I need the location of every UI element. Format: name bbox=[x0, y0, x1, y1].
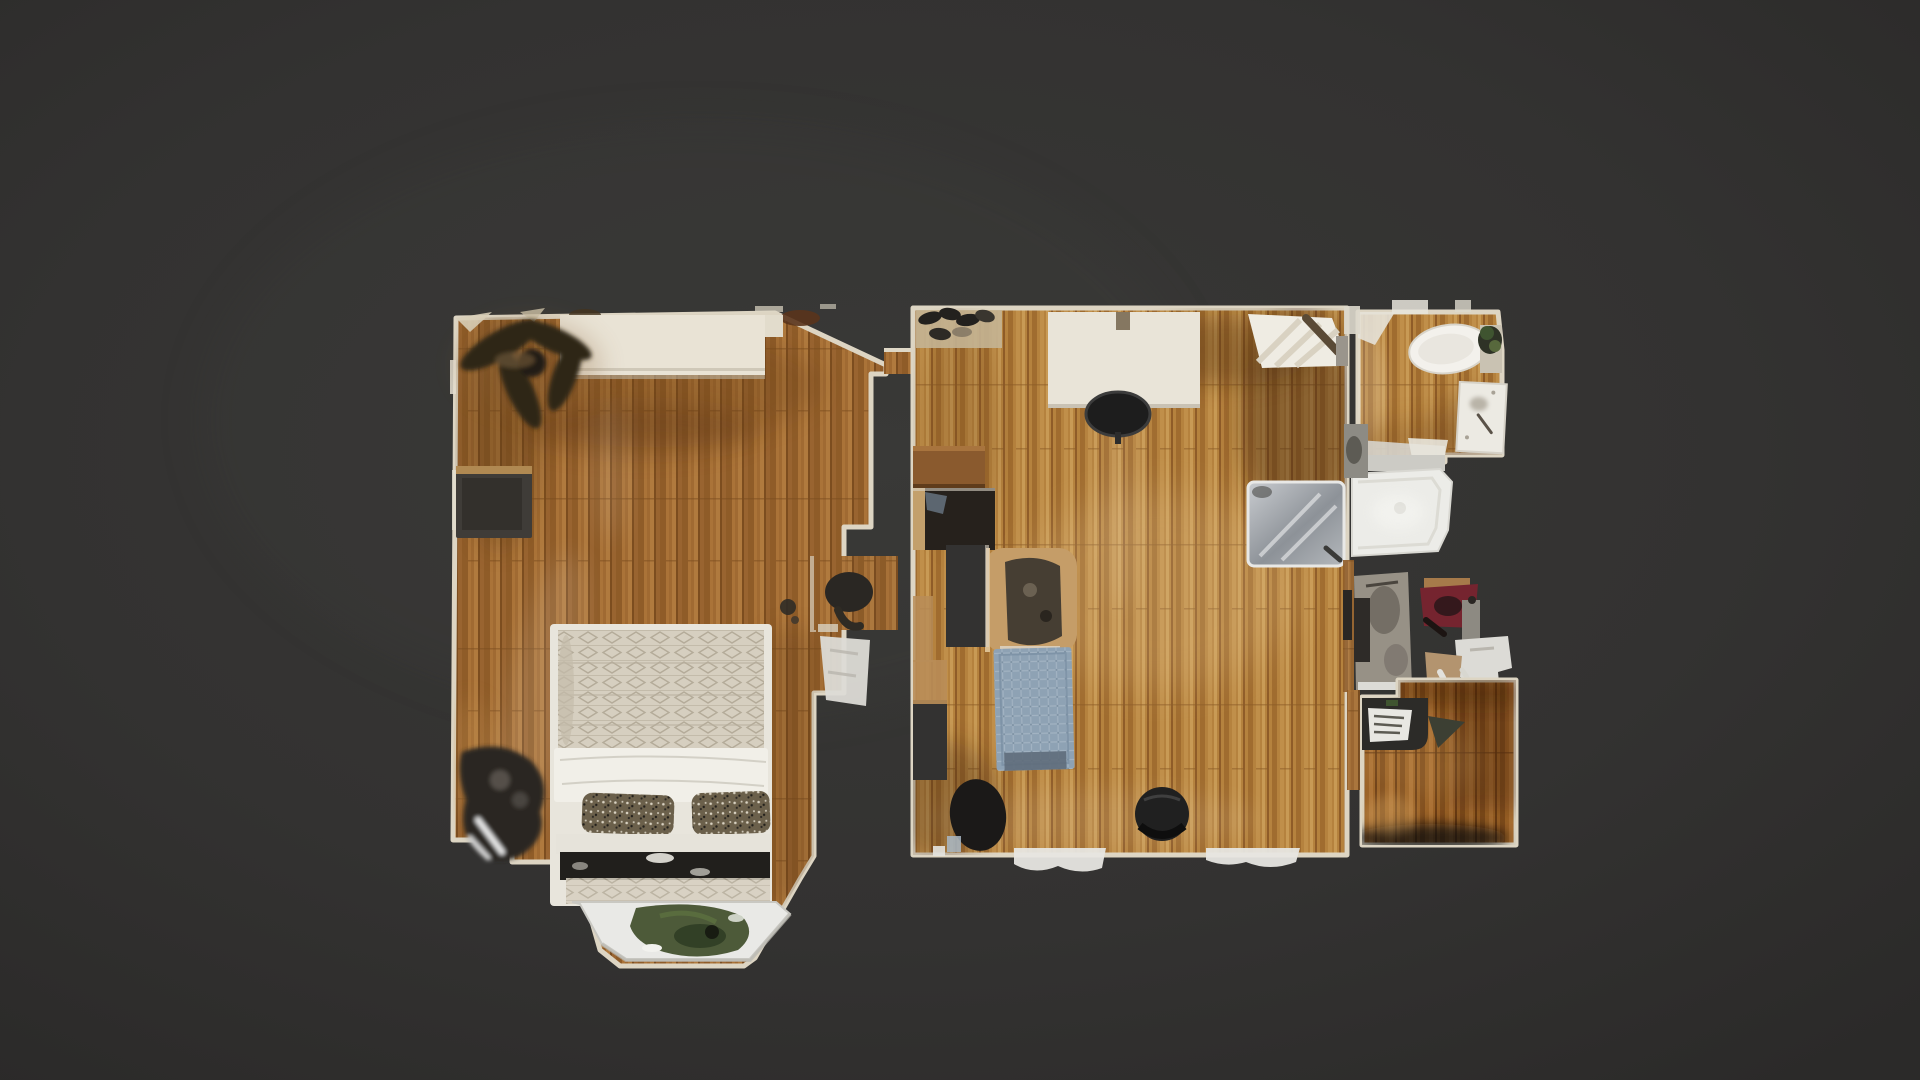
shoe-mat bbox=[916, 306, 1002, 348]
shoe bbox=[952, 327, 972, 337]
scan-tear bbox=[450, 360, 456, 394]
room-office-nook bbox=[1352, 678, 1520, 852]
floor-object bbox=[947, 836, 961, 852]
scan-hole bbox=[946, 545, 986, 647]
scan-hole-edge bbox=[985, 545, 989, 647]
bed bbox=[550, 624, 772, 906]
clothes-rack bbox=[1248, 314, 1348, 368]
door-leaf bbox=[1347, 690, 1360, 790]
floor-object bbox=[933, 846, 945, 856]
scan-tear bbox=[755, 306, 783, 312]
clothes-pile bbox=[460, 747, 544, 861]
floor-object bbox=[791, 616, 799, 624]
scan-tear bbox=[820, 304, 836, 309]
bed-foot-band bbox=[566, 878, 770, 904]
office-chair bbox=[1086, 392, 1150, 436]
pillow bbox=[581, 792, 674, 835]
tank-plant bbox=[1480, 326, 1494, 340]
glass-panel bbox=[1248, 482, 1344, 566]
tv-cabinet bbox=[913, 488, 995, 550]
armchair bbox=[985, 548, 1077, 652]
pillow bbox=[691, 791, 770, 836]
pillow-black-row bbox=[560, 852, 770, 880]
scan-fragment bbox=[818, 624, 838, 632]
scan-tear bbox=[1392, 300, 1428, 314]
wood-sliver bbox=[1343, 590, 1352, 640]
scan-tear bbox=[780, 310, 820, 326]
scan-fragment bbox=[820, 636, 870, 706]
side-table bbox=[913, 446, 985, 488]
couch-fragment bbox=[913, 660, 947, 704]
room-living bbox=[880, 305, 1360, 872]
wall-fragment bbox=[1344, 424, 1368, 478]
armchair-seat bbox=[1005, 558, 1062, 645]
floor-object bbox=[825, 572, 873, 612]
scan-hole bbox=[913, 700, 947, 780]
scan-tear bbox=[1455, 300, 1471, 312]
floor-object bbox=[780, 599, 796, 615]
viewer-stage bbox=[0, 0, 1920, 1080]
rug bbox=[993, 647, 1074, 771]
tank-plant bbox=[1489, 340, 1501, 352]
vanity-sink bbox=[1456, 382, 1507, 453]
wall-unit bbox=[452, 466, 532, 538]
wardrobe-panel bbox=[1354, 572, 1412, 690]
scan-fragment bbox=[1462, 600, 1480, 640]
floorplan-canvas[interactable] bbox=[0, 0, 1920, 1080]
couch-fragment bbox=[913, 596, 933, 662]
round-chair bbox=[1135, 787, 1189, 841]
scan-fragment bbox=[1468, 596, 1476, 604]
wall-fragment bbox=[1344, 306, 1360, 334]
bed-blanket bbox=[558, 630, 764, 748]
plant bbox=[630, 904, 749, 956]
room-bathroom bbox=[1350, 300, 1510, 470]
laptop bbox=[1386, 700, 1398, 706]
